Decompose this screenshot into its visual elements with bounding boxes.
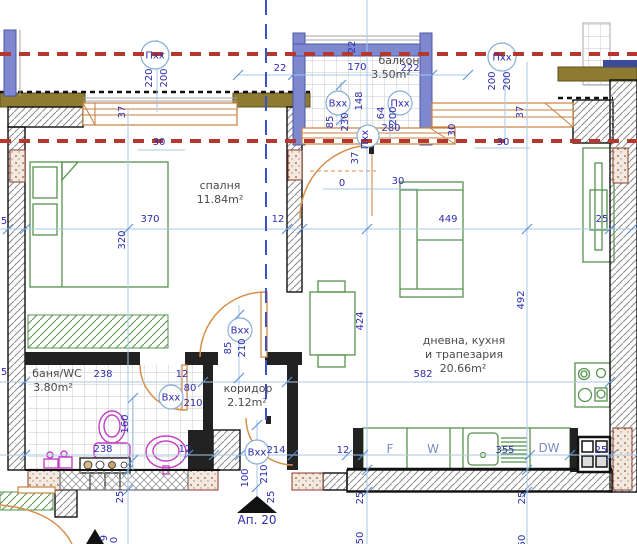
wall-bottom	[347, 470, 612, 492]
floor-plan-drawing: ПххПххВххПххПххВххВххВхх 220200373022221…	[0, 0, 637, 544]
dimension-label: 200	[502, 71, 513, 90]
dimension-label: 80	[184, 383, 197, 394]
dimension-label: 492	[516, 290, 527, 309]
neighbor-window-left	[4, 30, 20, 96]
masonry-block	[613, 428, 632, 490]
dimension-label: 200	[159, 68, 170, 87]
dimension-label: 230	[340, 112, 351, 131]
dimension-label: 64	[376, 107, 387, 120]
dimension-label: 50	[517, 535, 528, 544]
room-label: 20.66m²	[440, 362, 487, 375]
dimension-label: 25	[596, 214, 609, 225]
dimension-label: 214	[266, 445, 285, 456]
room-label: баня/WC	[32, 367, 82, 380]
dimension-label: 160	[120, 414, 131, 433]
masonry-block	[188, 470, 218, 490]
bathroom-wall	[265, 352, 302, 365]
wall-stub	[213, 430, 240, 470]
dimension-label: 12	[337, 445, 350, 456]
wall-stub	[323, 473, 347, 490]
opening-marker-label: Вхх	[329, 99, 348, 110]
stove	[575, 363, 610, 407]
dimension-label: 12	[179, 444, 192, 455]
opening-marker-label: Вхх	[162, 393, 181, 404]
opening-marker-label: Пхх	[145, 51, 164, 62]
wall-stub-lower	[55, 490, 77, 517]
dimension-label: 5	[1, 216, 7, 227]
dining-table	[310, 281, 355, 367]
opening-marker-label: Пхх	[492, 53, 511, 64]
dimension-label: 280	[381, 123, 400, 134]
appliance-label: F	[387, 442, 394, 456]
room-label: 3.80m²	[33, 381, 73, 394]
dimension-label: 238	[93, 444, 112, 455]
dimension-label: 22	[347, 41, 358, 54]
dimension-label: 85	[325, 116, 336, 129]
dimension-label: 148	[354, 91, 365, 110]
dimension-label: 25	[115, 491, 126, 504]
dimension-label: 238	[93, 369, 112, 380]
bedroom-window	[83, 98, 237, 125]
dimension-label: 37	[515, 106, 526, 119]
dimension-label: 424	[355, 311, 366, 330]
dimension-label: 12	[272, 214, 285, 225]
dimension-label: 582	[413, 369, 432, 380]
masonry-block	[10, 150, 25, 182]
dimension-label: 370	[140, 214, 159, 225]
room-label: дневна, кухня	[423, 334, 505, 347]
sofa	[400, 182, 463, 297]
dimension-label: 210	[183, 398, 202, 409]
dimension-label: 30	[447, 124, 458, 137]
dimension-label: 100	[240, 468, 251, 487]
dimension-label: 30	[497, 137, 510, 148]
dimension-label: 37	[350, 152, 361, 165]
dimension-label: 12	[176, 369, 189, 380]
masonry-block	[288, 150, 302, 180]
room-label: 11.84m²	[197, 193, 244, 206]
room-label: 2.12m²	[227, 396, 267, 409]
dimension-label: 200	[487, 71, 498, 90]
dimension-label: 50	[355, 532, 366, 544]
rug	[28, 315, 168, 348]
dimension-label: 355	[495, 445, 514, 456]
counter-end-wall	[353, 428, 363, 470]
dimension-label: 220	[144, 68, 155, 87]
neighbor-window-bar	[603, 60, 637, 67]
opening-marker-label: Вхх	[248, 448, 267, 459]
dimension-label: 30	[392, 176, 405, 187]
dimension-label: 37	[117, 106, 128, 119]
dimension-label: 25	[355, 492, 366, 505]
appliance-label: DW	[538, 441, 559, 455]
room-label: балкон	[378, 54, 419, 67]
wall-corner	[573, 100, 613, 143]
dimension-label: 210	[259, 464, 270, 483]
masonry-block	[613, 148, 628, 183]
bathroom-wall	[185, 352, 218, 365]
screed-band	[60, 470, 188, 490]
room-label: и трапезария	[425, 348, 503, 361]
lower-sill	[18, 487, 55, 493]
wall	[8, 107, 83, 127]
dimension-label: 25	[517, 492, 528, 505]
dimension-label: 170	[347, 62, 366, 73]
apartment-number-label: Ап. 20	[238, 513, 277, 527]
dimension-label: 85	[223, 342, 234, 355]
opening-marker-label: Вхх	[231, 326, 250, 337]
dimension-label: 25	[595, 445, 608, 456]
dimension-label: 320	[117, 230, 128, 249]
opening-marker-label: Пхх	[360, 130, 371, 149]
dimension-label: 0	[339, 178, 345, 189]
room-label: 3.50m²	[371, 68, 411, 81]
masonry-block	[292, 473, 323, 490]
room-label: спалня	[200, 179, 241, 192]
floor-plan-canvas: ПххПххВххПххПххВххВххВхх 220200373022221…	[0, 0, 637, 544]
dimension-label: 449	[438, 214, 457, 225]
appliance-label: W	[427, 442, 439, 456]
dimension-label: 210	[237, 338, 248, 357]
dimension-label: 0	[109, 537, 120, 543]
floor-tiles	[28, 23, 610, 470]
lower-balcony-rail	[0, 492, 53, 510]
room-label: коридор	[224, 382, 273, 395]
dimension-label: 30	[153, 137, 166, 148]
facade-band	[558, 67, 637, 81]
dimension-label: 25	[266, 491, 277, 504]
dimension-label: 5	[1, 367, 7, 378]
dimension-label: 22	[274, 63, 287, 74]
bathroom-wall	[25, 352, 140, 365]
